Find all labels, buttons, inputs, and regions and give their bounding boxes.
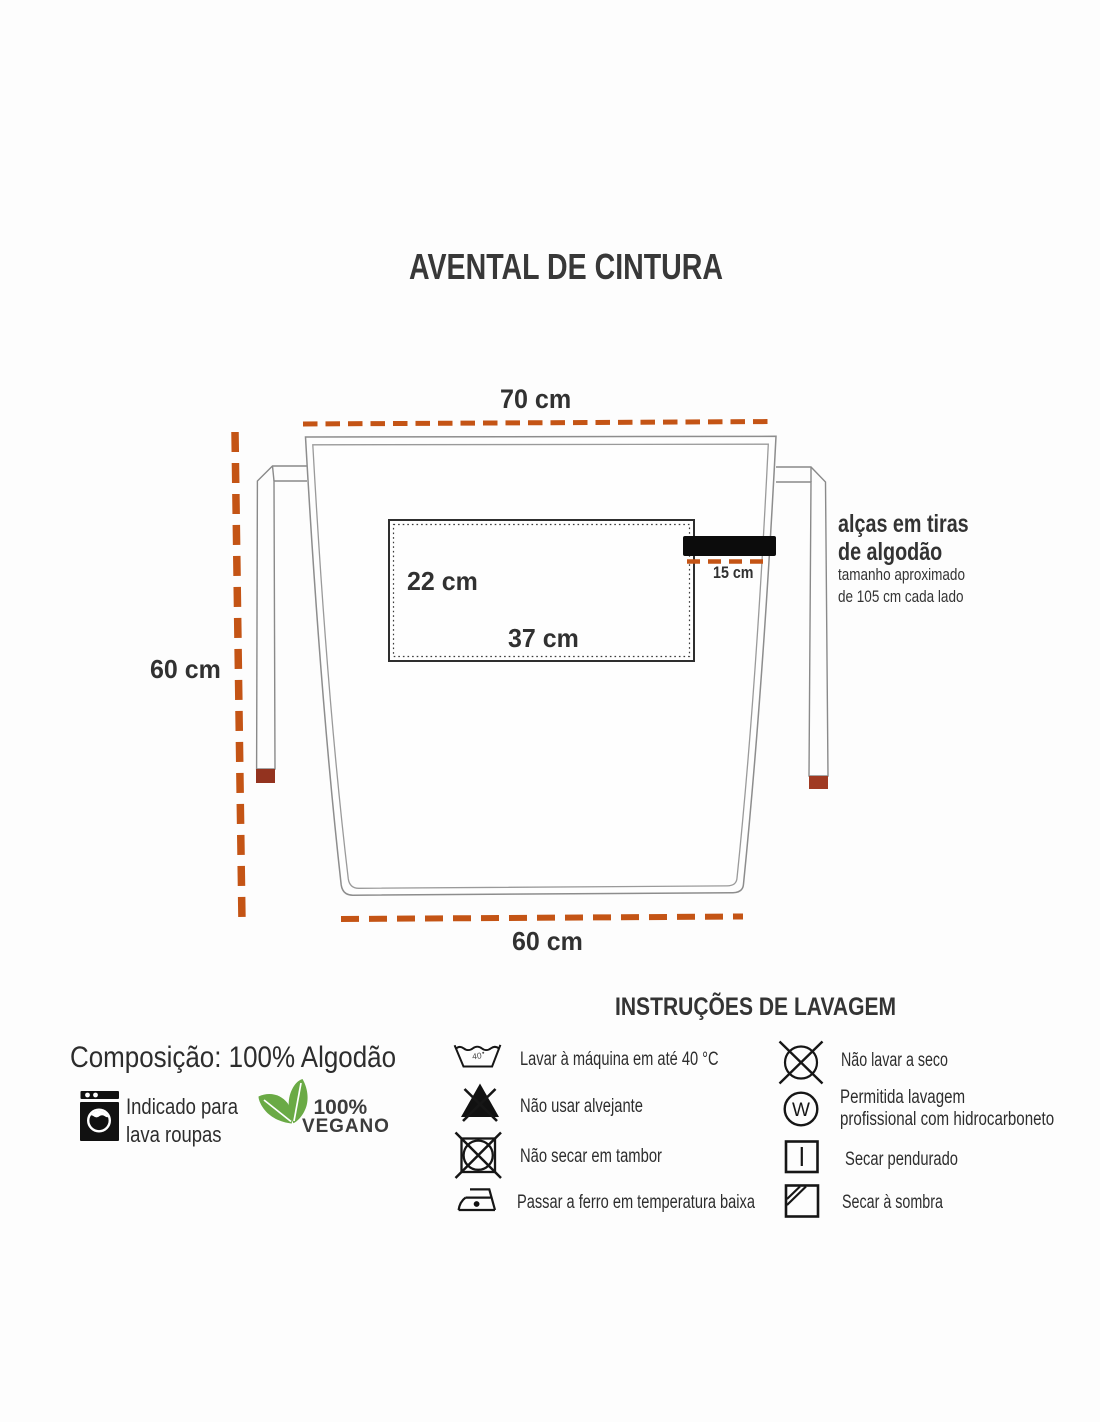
svg-text:40: 40 (472, 1050, 483, 1061)
svg-text:W: W (792, 1100, 810, 1121)
